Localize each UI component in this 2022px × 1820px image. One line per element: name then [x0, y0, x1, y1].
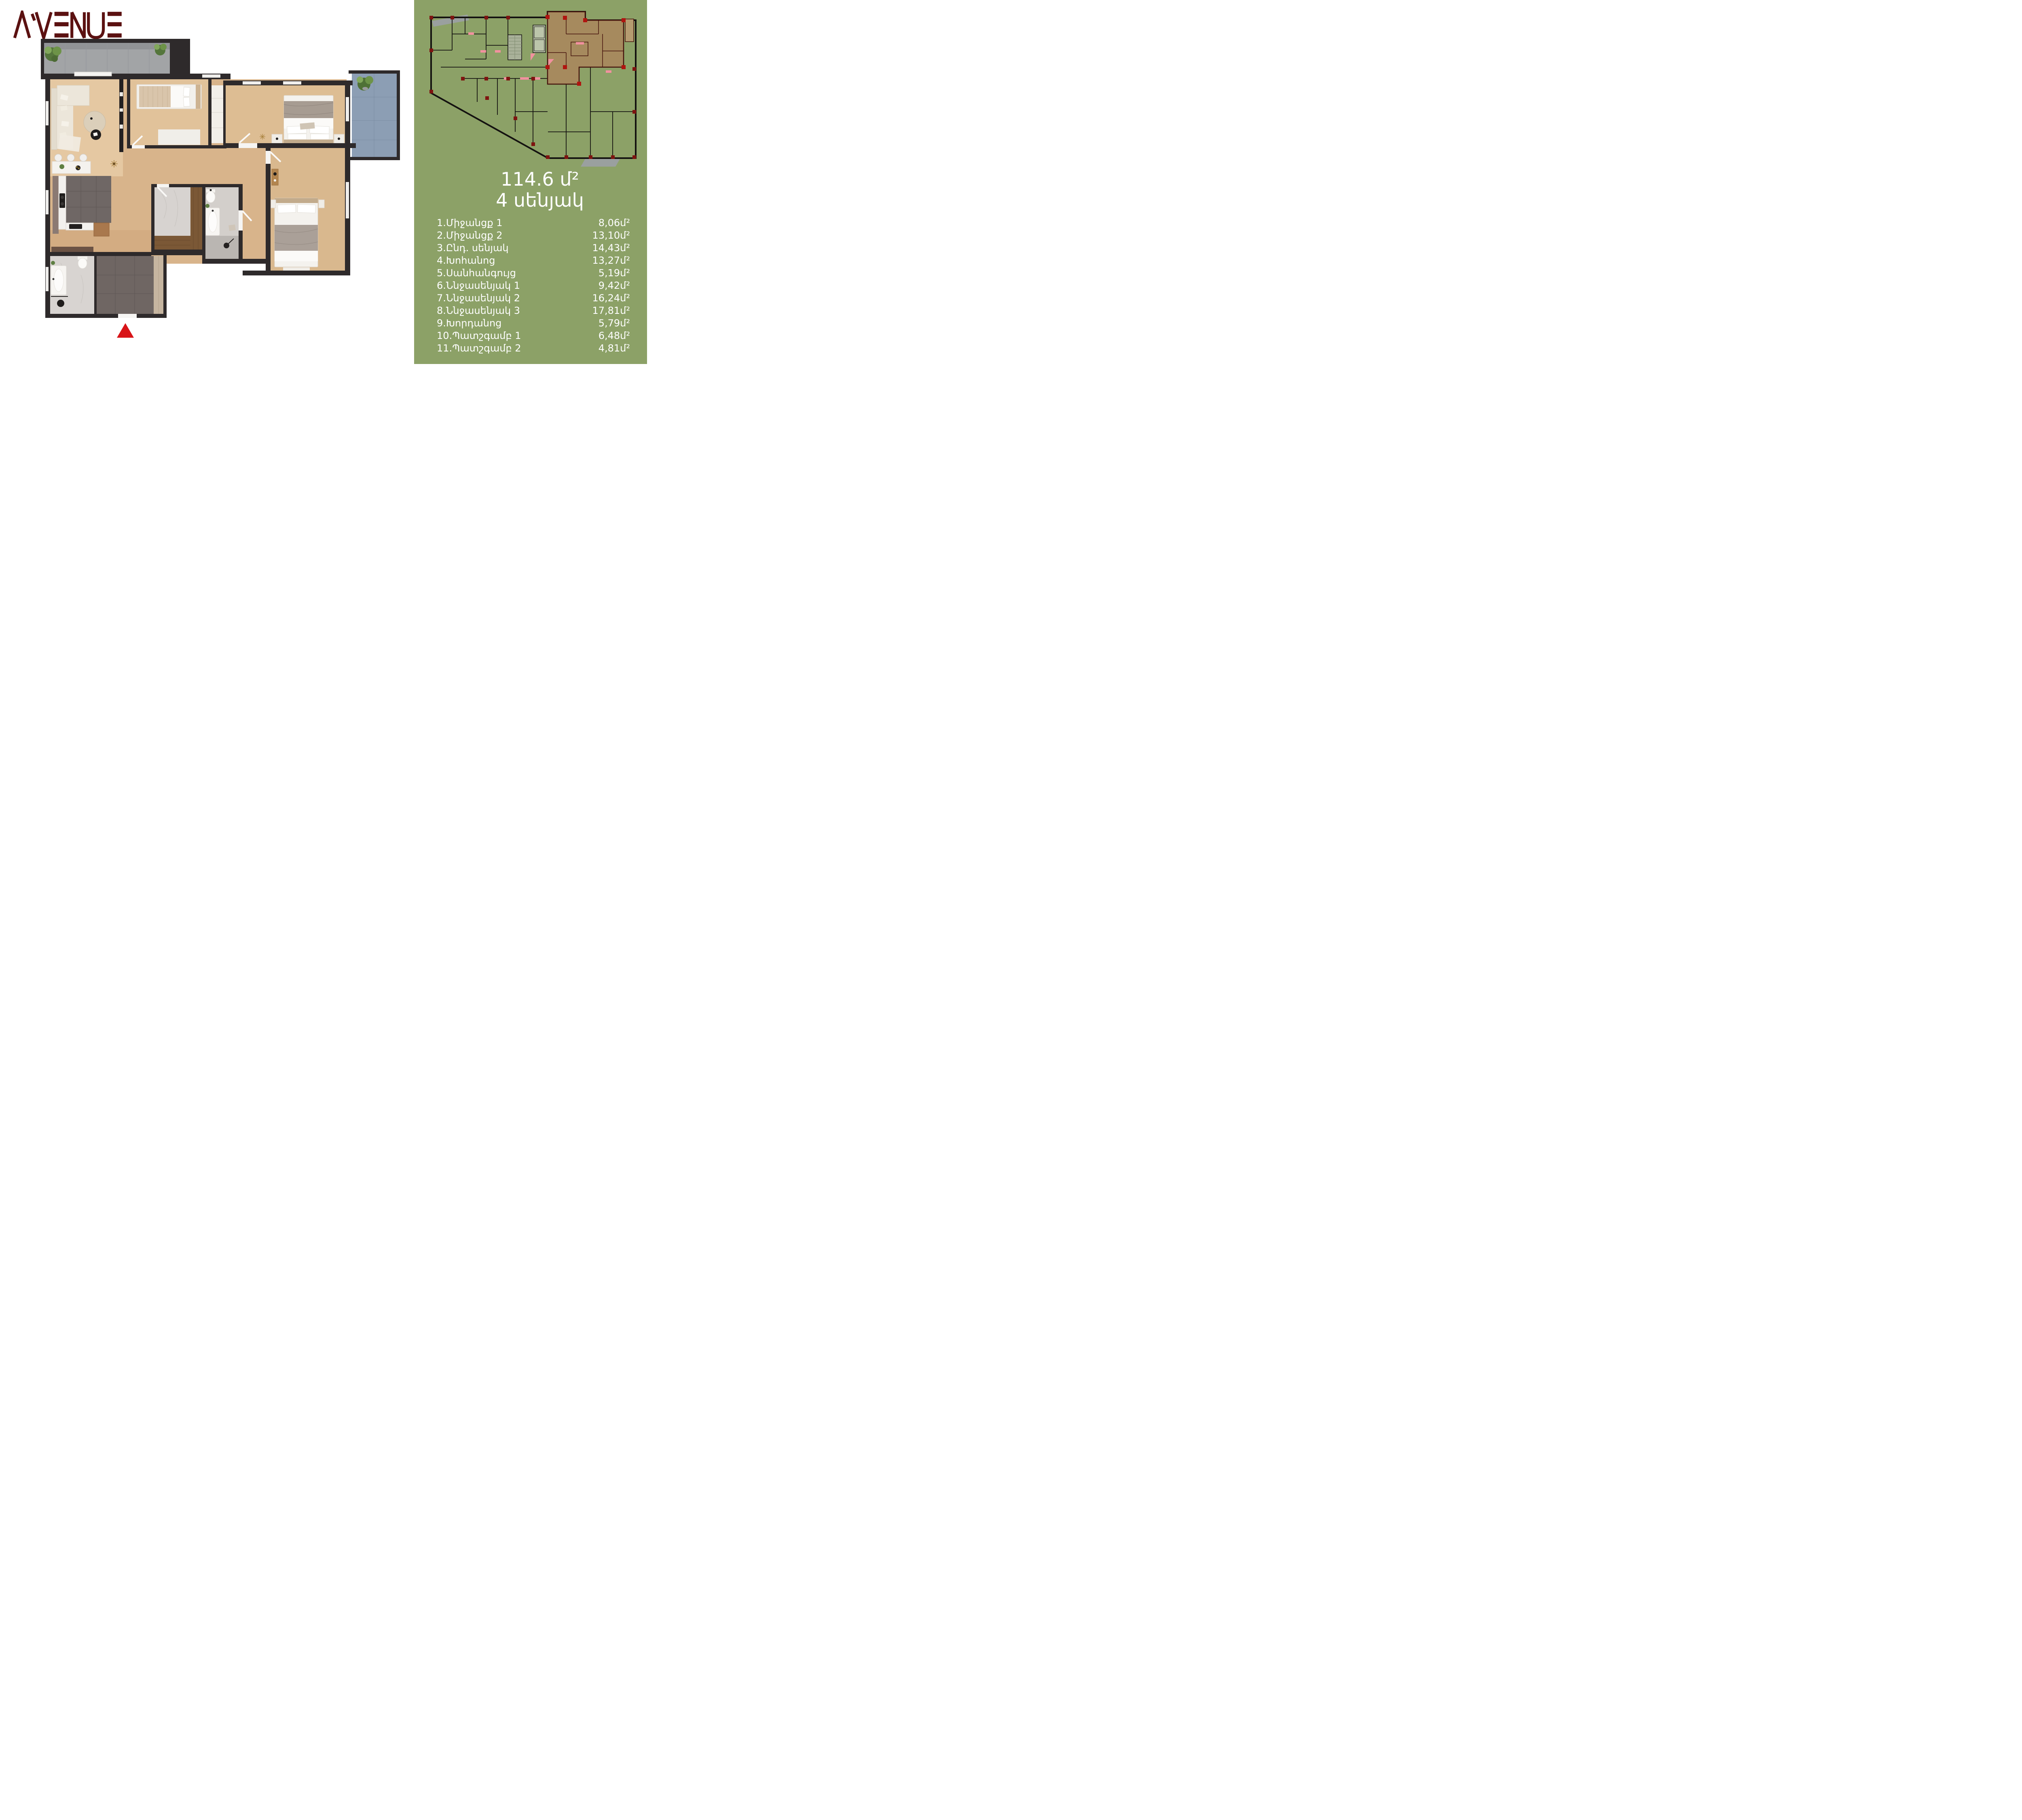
brand-logo-mark — [11, 11, 125, 40]
bar-stools — [55, 154, 87, 161]
room-list-item: 7.Ննջասենյակ 216,24մ² — [437, 292, 630, 305]
nightstand — [271, 200, 276, 208]
entry-hall — [96, 256, 163, 314]
info-panel: 114.6 մ² 4 սենյակ 1.Միջանցք 18,06մ² 2.Մի… — [414, 0, 647, 364]
room-area: 17,81մ² — [592, 305, 630, 317]
room-area: 4,81մ² — [599, 342, 630, 355]
nightstand — [319, 200, 324, 208]
stool — [57, 300, 64, 307]
room-area: 13,10մ² — [592, 229, 630, 242]
highlighted-unit — [548, 12, 624, 84]
area-title: 114.6 մ² — [441, 169, 639, 190]
room-label: 5.Սանհանգույց — [437, 267, 516, 279]
bench — [158, 129, 200, 145]
room-area: 5,79մ² — [599, 317, 630, 330]
toilet — [206, 191, 215, 203]
highlighted-unit-balcony — [625, 19, 634, 42]
cooktop — [59, 193, 65, 208]
hall-cabinet — [51, 247, 93, 252]
brand-logo: AVENUE — [11, 11, 125, 40]
balcony-sliding-door — [74, 72, 112, 76]
rooms-count-title: 4 սենյակ — [441, 190, 639, 211]
toilet — [78, 258, 87, 269]
listing-poster: AVENUE Davtashen — [0, 0, 647, 364]
entrance-marker-icon — [117, 323, 134, 338]
entrance-door — [118, 314, 137, 318]
room-area: 13,27մ² — [592, 254, 630, 267]
room-list-item: 6.Ննջասենյակ 19,42մ² — [437, 279, 630, 292]
kitchen-sink — [69, 224, 82, 229]
sidewalk-slab — [581, 158, 620, 167]
room-label: 2.Միջանցք 2 — [437, 229, 503, 242]
room-label: 11.Պատշգամբ 2 — [437, 342, 521, 355]
bathroom-center — [205, 187, 239, 259]
storage-room — [154, 187, 202, 250]
room-area: 14,43մ² — [592, 242, 630, 254]
bathroom-left — [50, 256, 94, 314]
apartment-floorplan — [38, 36, 402, 360]
room-label: 8.Ննջասենյակ 3 — [437, 305, 520, 317]
wardrobe-niche — [212, 85, 223, 143]
balcony-top-left — [44, 43, 170, 74]
plant-icon — [59, 164, 64, 169]
room-list-item: 5.Սանհանգույց5,19մ² — [437, 267, 630, 279]
kitchen-island — [52, 161, 91, 174]
room-list-item: 10.Պատշգամբ 16,48մ² — [437, 330, 630, 342]
room-area: 16,24մ² — [592, 292, 630, 305]
room-list-item: 1.Միջանցք 18,06մ² — [437, 217, 630, 229]
room-list-item: 11.Պատշգամբ 24,81մ² — [437, 342, 630, 355]
dresser — [272, 169, 278, 185]
kitchen-wood-cabinet — [94, 223, 109, 236]
room-label: 4.Խոհանոց — [437, 254, 495, 267]
room-list-item: 8.Ննջասենյակ 317,81մ² — [437, 305, 630, 317]
room-list-item: 4.Խոհանոց13,27մ² — [437, 254, 630, 267]
sofa — [51, 88, 57, 150]
room-list-item: 2.Միջանցք 213,10մ² — [437, 229, 630, 242]
fruit-bowl — [76, 165, 80, 170]
shelf-partition — [119, 79, 123, 152]
throw-blanket — [58, 135, 81, 152]
elevator-icon — [533, 25, 546, 53]
room-area: 5,19մ² — [599, 267, 630, 279]
room-label: 9.Խորդանոց — [437, 317, 501, 330]
plant-icon — [51, 261, 55, 265]
room-label: 7.Ննջասենյակ 2 — [437, 292, 520, 305]
dried-flower-decor — [260, 134, 265, 140]
stairwell — [508, 35, 522, 60]
room-area: 6,48մ² — [599, 330, 630, 342]
room-list-item: 3.Ընդ. սենյակ14,43մ² — [437, 242, 630, 254]
building-minimap — [429, 11, 637, 167]
room-list-item: 9.Խորդանոց5,79մ² — [437, 317, 630, 330]
room-list: 1.Միջանցք 18,06մ² 2.Միջանցք 213,10մ² 3.Ը… — [437, 217, 630, 355]
room-label: 6.Ննջասենյակ 1 — [437, 279, 520, 292]
balcony-right — [352, 74, 397, 157]
room-label: 10.Պատշգամբ 1 — [437, 330, 521, 342]
plant-icon — [205, 204, 209, 208]
kitchen-tall-cabinet — [53, 176, 59, 234]
room-label: 1.Միջանցք 1 — [437, 217, 503, 229]
room-area: 9,42մ² — [599, 279, 630, 292]
bench — [283, 267, 310, 271]
room-label: 3.Ընդ. սենյակ — [437, 242, 509, 254]
room-area: 8,06մ² — [599, 217, 630, 229]
